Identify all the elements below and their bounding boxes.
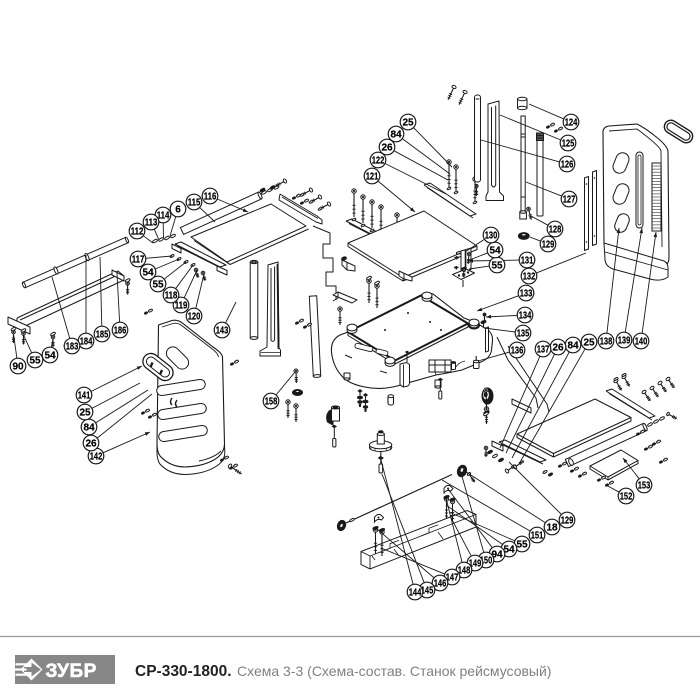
svg-text:158: 158 (265, 397, 278, 408)
svg-text:117: 117 (132, 255, 145, 266)
svg-text:139: 139 (618, 336, 631, 347)
svg-text:132: 132 (523, 272, 536, 283)
svg-text:142: 142 (90, 452, 103, 463)
svg-text:25: 25 (79, 408, 91, 419)
svg-text:122: 122 (372, 156, 385, 167)
svg-text:55: 55 (516, 540, 528, 551)
svg-text:25: 25 (402, 118, 414, 129)
svg-text:124: 124 (565, 118, 578, 129)
svg-text:146: 146 (434, 579, 447, 590)
svg-text:144: 144 (409, 588, 422, 599)
svg-text:ЗУБР: ЗУБР (46, 661, 97, 682)
svg-text:125: 125 (562, 139, 575, 150)
svg-text:115: 115 (188, 198, 201, 209)
svg-text:135: 135 (517, 329, 530, 340)
svg-text:129: 129 (542, 240, 555, 251)
svg-text:26: 26 (552, 343, 564, 354)
svg-text:136: 136 (511, 346, 524, 357)
svg-text:54: 54 (489, 246, 501, 257)
svg-text:112: 112 (131, 227, 144, 238)
svg-text:СР-330-1800.: СР-330-1800. (135, 663, 232, 680)
svg-text:134: 134 (519, 311, 532, 322)
svg-text:55: 55 (29, 356, 41, 367)
svg-text:131: 131 (521, 256, 534, 267)
svg-text:118: 118 (165, 291, 178, 302)
svg-text:116: 116 (204, 192, 217, 203)
svg-text:90: 90 (12, 362, 24, 373)
svg-text:84: 84 (83, 423, 95, 434)
svg-text:126: 126 (561, 160, 574, 171)
svg-text:137: 137 (537, 345, 550, 356)
svg-text:143: 143 (216, 326, 229, 337)
svg-text:6: 6 (175, 205, 181, 216)
svg-text:184: 184 (80, 337, 93, 348)
svg-text:121: 121 (366, 172, 379, 183)
svg-text:54: 54 (44, 351, 56, 362)
svg-text:128: 128 (549, 225, 562, 236)
svg-text:25: 25 (583, 338, 595, 349)
svg-text:26: 26 (85, 439, 97, 450)
svg-text:152: 152 (620, 492, 633, 503)
svg-text:185: 185 (96, 330, 109, 341)
svg-text:183: 183 (66, 342, 79, 353)
svg-text:140: 140 (635, 337, 648, 348)
svg-text:138: 138 (600, 337, 613, 348)
svg-text:Схема 3-3 (Схема-состав. Стано: Схема 3-3 (Схема-состав. Станок рейсмусо… (237, 663, 551, 679)
svg-text:55: 55 (152, 280, 164, 291)
svg-text:129: 129 (561, 516, 574, 527)
svg-text:186: 186 (114, 326, 127, 337)
svg-text:55: 55 (491, 261, 503, 272)
svg-text:119: 119 (175, 301, 188, 312)
svg-text:26: 26 (381, 143, 393, 154)
svg-text:141: 141 (78, 391, 91, 402)
svg-text:130: 130 (485, 231, 498, 242)
svg-text:84: 84 (567, 341, 579, 352)
svg-text:54: 54 (142, 268, 154, 279)
svg-text:113: 113 (145, 218, 158, 229)
svg-text:120: 120 (188, 312, 201, 323)
svg-text:84: 84 (390, 130, 402, 141)
svg-text:127: 127 (563, 195, 576, 206)
svg-text:151: 151 (531, 531, 544, 542)
svg-text:18: 18 (546, 523, 558, 534)
svg-text:153: 153 (638, 481, 651, 492)
svg-text:133: 133 (520, 289, 533, 300)
